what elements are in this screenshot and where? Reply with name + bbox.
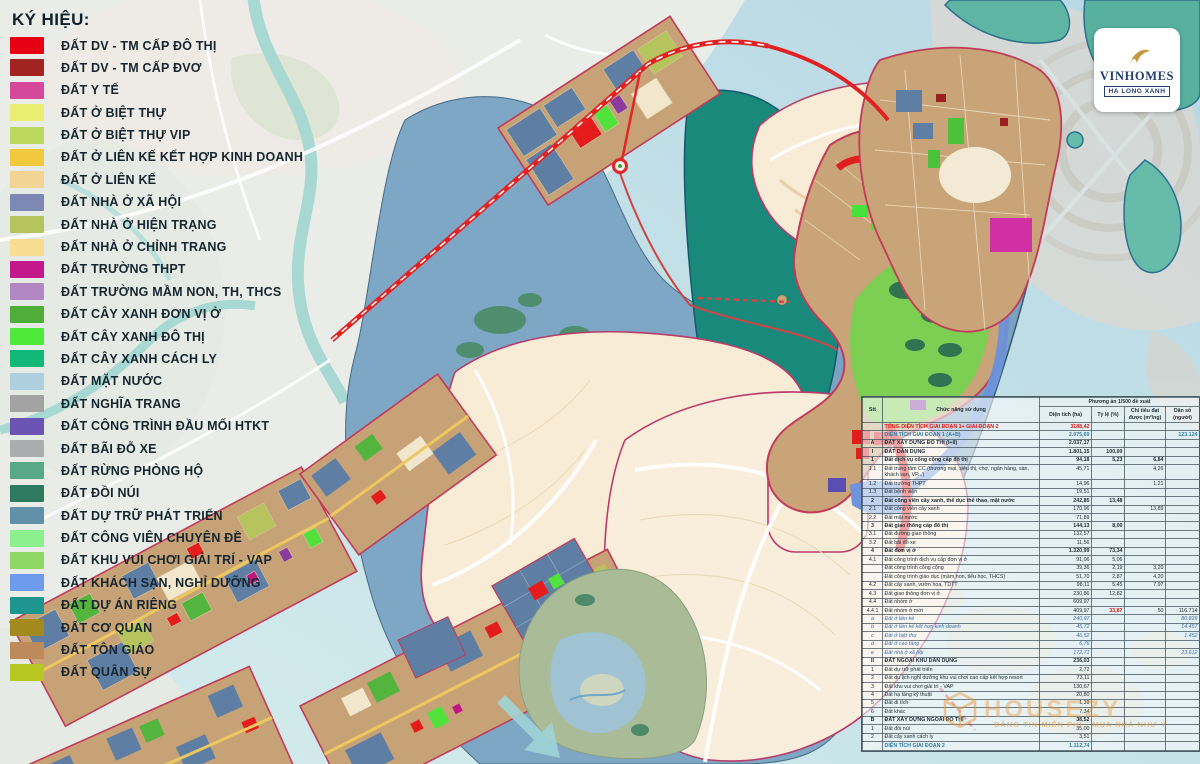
table-cell: Đất dịch vụ công cộng cấp đô thị: [883, 456, 1040, 464]
table-cell: 45,72: [1040, 623, 1092, 631]
table-cell: Đất đồi núi: [883, 725, 1040, 733]
col-header-plan: Phương án 1/500 đề xuất: [1040, 398, 1200, 407]
table-cell: 1.1: [863, 465, 883, 480]
table-cell: [1092, 742, 1125, 750]
table-cell: [1092, 431, 1125, 439]
table-cell: [1166, 725, 1200, 733]
table-cell: [1125, 431, 1166, 439]
table-cell: 4.4: [863, 598, 883, 606]
table-row: DIỆN TÍCH GIAI ĐOẠN 21.112,74: [863, 742, 1200, 750]
legend-label: ĐẤT TRƯỜNG MẦM NON, TH, THCS: [61, 285, 281, 299]
table-cell: 1.801,15: [1040, 448, 1092, 456]
table-cell: [1166, 581, 1200, 589]
table-cell: [863, 431, 883, 439]
legend-item: ĐẤT Ở BIỆT THỰ: [10, 104, 355, 121]
table-cell: Đất cây xanh cách ly: [883, 733, 1040, 741]
table-cell: 14,96: [1040, 480, 1092, 488]
legend-label: ĐẤT CÂY XANH ĐÔ THỊ: [61, 330, 205, 344]
legend-swatch: [10, 619, 44, 636]
table-cell: 2: [863, 497, 883, 505]
table-row: 4.2Đất cây xanh, vườn hoa, TDTT98,115,45…: [863, 581, 1200, 589]
table-cell: 4: [863, 547, 883, 555]
table-cell: 3,20: [1125, 564, 1166, 572]
legend-item: ĐẤT DV - TM CẤP ĐÔ THỊ: [10, 37, 355, 54]
legend-label: ĐẤT MẶT NƯỚC: [61, 374, 162, 388]
col-header-function: Chức năng sử dụng: [883, 398, 1040, 423]
table-cell: [1092, 657, 1125, 665]
legend-swatch: [10, 530, 44, 547]
table-cell: [1125, 448, 1166, 456]
table-cell: [1166, 683, 1200, 691]
table-cell: 4,26: [1125, 465, 1166, 480]
table-row: 4.1Đất công trình dịch vụ cấp đơn vị ở91…: [863, 556, 1200, 564]
table-cell: 3,51: [1040, 733, 1092, 741]
table-row: 5Đất di tích1,39: [863, 699, 1200, 707]
table-cell: [1166, 547, 1200, 555]
table-cell: [1125, 742, 1166, 750]
table-cell: 1: [863, 666, 883, 674]
legend-swatch: [10, 171, 44, 188]
legend-label: ĐẤT BÃI ĐỖ XE: [61, 442, 157, 456]
legend-label: ĐẤT Ở LIÊN KẾ: [61, 173, 156, 187]
table-cell: [1166, 716, 1200, 724]
legend-label: ĐẤT Ở LIÊN KẾ KẾT HỢP KINH DOANH: [61, 150, 303, 164]
table-cell: Đất ở liền kề: [883, 615, 1040, 623]
table-cell: 130,67: [1040, 683, 1092, 691]
table-cell: [1092, 615, 1125, 623]
table-cell: [1166, 514, 1200, 522]
table-cell: 2.1: [863, 505, 883, 513]
table-cell: Đất đường giao thông: [883, 530, 1040, 538]
legend-label: ĐẤT CÂY XANH CÁCH LY: [61, 352, 217, 366]
table-cell: 236,03: [1040, 657, 1092, 665]
legend-label: ĐẤT DỰ ÁN RIÊNG: [61, 598, 177, 612]
table-cell: TỔNG DIỆN TÍCH GIAI ĐOẠN 1+ GIAI ĐOẠN 2: [883, 423, 1040, 431]
table-cell: B: [863, 716, 883, 724]
table-cell: Đất công trình công cộng: [883, 564, 1040, 572]
table-cell: [1092, 623, 1125, 631]
legend-swatch: [10, 418, 44, 435]
table-cell: Đất công viên cây xanh: [883, 505, 1040, 513]
legend-label: ĐẤT DỰ TRỮ PHÁT TRIỂN: [61, 509, 223, 523]
legend-list: ĐẤT DV - TM CẤP ĐÔ THỊĐẤT DV - TM CẤP ĐV…: [10, 37, 355, 681]
table-cell: 4.4.1: [863, 607, 883, 615]
table-cell: 13,48: [1092, 497, 1125, 505]
legend-label: ĐẤT DV - TM CẤP ĐVƠ: [61, 61, 202, 75]
table-row: bĐất ở liền kề kết hợp kinh doanh45,7214…: [863, 623, 1200, 631]
table-cell: Đất khác: [883, 708, 1040, 716]
legend-label: ĐẤT CÔNG VIÊN CHUYÊN ĐỀ: [61, 531, 242, 545]
table-row: 2Đất du lịch nghỉ dưỡng khu vui chơi cao…: [863, 674, 1200, 682]
table-cell: [1125, 615, 1166, 623]
legend-item: ĐẤT CÔNG TRÌNH ĐẦU MỐI HTKT: [10, 418, 355, 435]
vinhomes-logo: VINHOMES HẠ LONG XANH: [1094, 28, 1180, 112]
legend-label: ĐẤT ĐỒI NÚI: [61, 486, 140, 500]
table-cell: Đất ở cao tầng: [883, 640, 1040, 648]
table-row: IIĐẤT NGOÀI KHU DÂN DỤNG236,03: [863, 657, 1200, 665]
legend-item: ĐẤT RỪNG PHÒNG HỘ: [10, 462, 355, 479]
table-row: aĐất ở liền kề240,9780.829: [863, 615, 1200, 623]
table-cell: Đất mặt nước: [883, 514, 1040, 522]
table-cell: 13,89: [1125, 505, 1166, 513]
legend-item: ĐẤT MẶT NƯỚC: [10, 373, 355, 390]
table-row: Đất công trình giáo dục (mầm non, tiểu h…: [863, 573, 1200, 581]
table-row: IĐẤT DÂN DỤNG1.801,15100,00: [863, 448, 1200, 456]
table-cell: [1166, 556, 1200, 564]
table-cell: [1166, 530, 1200, 538]
legend-swatch: [10, 261, 44, 278]
table-cell: 98,11: [1040, 581, 1092, 589]
table-row: 2.1Đất công viên cây xanh170,9613,89: [863, 505, 1200, 513]
table-cell: 1.320,99: [1040, 547, 1092, 555]
table-cell: [1125, 691, 1166, 699]
legend-item: ĐẤT TRƯỜNG MẦM NON, TH, THCS: [10, 283, 355, 300]
table-cell: 14.457: [1166, 623, 1200, 631]
legend-label: ĐẤT QUÂN SỰ: [61, 665, 151, 679]
table-cell: 50: [1125, 607, 1166, 615]
legend-swatch: [10, 127, 44, 144]
table-cell: 2,19: [1092, 564, 1125, 572]
table-cell: [1092, 725, 1125, 733]
table-cell: 2.075,69: [1040, 431, 1092, 439]
table-cell: [1125, 666, 1166, 674]
legend-item: ĐẤT DV - TM CẤP ĐVƠ: [10, 59, 355, 76]
table-cell: ĐẤT XÂY DỰNG ĐÔ THỊ (I+II): [883, 439, 1040, 447]
table-cell: 4.3: [863, 590, 883, 598]
table-cell: [1125, 488, 1166, 496]
legend-item: ĐẤT NHÀ Ở XÃ HỘI: [10, 194, 355, 211]
table-cell: I: [863, 448, 883, 456]
table-cell: ĐẤT XÂY DỰNG NGOÀI ĐÔ THỊ: [883, 716, 1040, 724]
table-cell: [1166, 674, 1200, 682]
table-cell: [1125, 522, 1166, 530]
table-row: 3.1Đất đường giao thông132,57: [863, 530, 1200, 538]
table-cell: 46,52: [1040, 632, 1092, 640]
table-cell: 38,52: [1040, 716, 1092, 724]
table-cell: [1125, 556, 1166, 564]
legend-swatch: [10, 59, 44, 76]
legend-item: ĐẤT CÂY XANH ĐƠN VỊ Ở: [10, 306, 355, 323]
table-cell: [1125, 699, 1166, 707]
legend-item: ĐẤT Ở LIÊN KẾ KẾT HỢP KINH DOANH: [10, 149, 355, 166]
table-cell: ĐẤT NGOÀI KHU DÂN DỤNG: [883, 657, 1040, 665]
table-row: 1.2Đất trường THPT14,961,21: [863, 480, 1200, 488]
table-row: 1Đất dịch vụ công cộng cấp đô thị94,185,…: [863, 456, 1200, 464]
table-cell: [1166, 497, 1200, 505]
table-cell: c: [863, 632, 883, 640]
table-cell: Đất ở liền kề kết hợp kinh doanh: [883, 623, 1040, 631]
table-cell: [1166, 640, 1200, 648]
table-cell: 80.829: [1166, 615, 1200, 623]
legend-label: ĐẤT NHÀ Ở XÃ HỘI: [61, 195, 181, 209]
table-cell: [1125, 514, 1166, 522]
legend-swatch: [10, 104, 44, 121]
table-cell: [1125, 683, 1166, 691]
table-cell: 116.714: [1166, 607, 1200, 615]
col-header-pct: Tỷ lệ (%): [1092, 407, 1125, 423]
table-cell: [1125, 657, 1166, 665]
table-cell: [1166, 448, 1200, 456]
table-cell: Đất công trình dịch vụ cấp đơn vị ở: [883, 556, 1040, 564]
legend-item: ĐẤT CÔNG VIÊN CHUYÊN ĐỀ: [10, 530, 355, 547]
table-cell: [1092, 674, 1125, 682]
table-cell: 73,34: [1092, 547, 1125, 555]
table-cell: 3: [863, 683, 883, 691]
col-header-stt: Stt: [863, 398, 883, 423]
table-cell: 242,85: [1040, 497, 1092, 505]
legend-item: ĐẤT KHU VUI CHƠI GIẢI TRÍ - VAP: [10, 552, 355, 569]
table-cell: 5,23: [1092, 456, 1125, 464]
table-cell: [1092, 716, 1125, 724]
table-cell: d: [863, 640, 883, 648]
legend-label: ĐẤT KHU VUI CHƠI GIẢI TRÍ - VAP: [61, 553, 272, 567]
table-cell: [1166, 423, 1200, 431]
table-cell: [1092, 465, 1125, 480]
table-row: AĐẤT XÂY DỰNG ĐÔ THỊ (I+II)2.037,17: [863, 439, 1200, 447]
legend-swatch: [10, 462, 44, 479]
table-cell: 94,18: [1040, 456, 1092, 464]
table-row: 3.2Đất bãi đỗ xe11,56: [863, 539, 1200, 547]
table-row: 1Đất đồi núi35,00: [863, 725, 1200, 733]
legend-item: ĐẤT TÔN GIÁO: [10, 642, 355, 659]
table-cell: 230,86: [1040, 590, 1092, 598]
table-cell: [1166, 657, 1200, 665]
legend-swatch: [10, 216, 44, 233]
table-cell: [1092, 598, 1125, 606]
table-cell: [863, 742, 883, 750]
table-cell: [1125, 716, 1166, 724]
legend-swatch: [10, 82, 44, 99]
legend-label: ĐẤT CƠ QUAN: [61, 621, 152, 635]
table-cell: e: [863, 649, 883, 657]
table-cell: [1092, 488, 1125, 496]
table-cell: 45,71: [1040, 465, 1092, 480]
table-cell: [1166, 522, 1200, 530]
table-cell: 170,96: [1040, 505, 1092, 513]
table-row: 4.4.1Đất nhóm ở mới409,9733,8750116.714: [863, 607, 1200, 615]
table-cell: 3: [863, 522, 883, 530]
table-cell: Đất dự trữ phát triển: [883, 666, 1040, 674]
table-row: 4Đất hạ tầng kỹ thuật20,80: [863, 691, 1200, 699]
legend-swatch: [10, 149, 44, 166]
table-row: 4.3Đất giao thông đơn vị ở230,8612,82: [863, 590, 1200, 598]
legend-item: ĐẤT Y TẾ: [10, 82, 355, 99]
table-cell: 100,00: [1092, 448, 1125, 456]
table-cell: 91,06: [1040, 556, 1092, 564]
table-cell: 39,36: [1040, 564, 1092, 572]
legend-item: ĐẤT CƠ QUAN: [10, 619, 355, 636]
table-cell: [1092, 666, 1125, 674]
legend-label: ĐẤT Ở BIỆT THỰ: [61, 106, 166, 120]
table-cell: 6,76: [1040, 640, 1092, 648]
table-cell: [1166, 573, 1200, 581]
table-cell: [1166, 505, 1200, 513]
table-cell: 3.1: [863, 530, 883, 538]
legend-swatch: [10, 664, 44, 681]
table-cell: Đất giao thông cấp đô thị: [883, 522, 1040, 530]
table-row: 2.2Đất mặt nước71,89: [863, 514, 1200, 522]
table-cell: Đất bệnh viện: [883, 488, 1040, 496]
legend-item: ĐẤT CÂY XANH ĐÔ THỊ: [10, 328, 355, 345]
table-cell: 73,11: [1040, 674, 1092, 682]
table-cell: 12,82: [1092, 590, 1125, 598]
land-use-table: Stt Chức năng sử dụng Phương án 1/500 đề…: [862, 397, 1199, 751]
table-row: Đất công trình công cộng39,362,193,20: [863, 564, 1200, 572]
logo-brand: VINHOMES: [1100, 69, 1174, 84]
table-cell: [1125, 708, 1166, 716]
table-cell: 2,72: [1040, 666, 1092, 674]
table-cell: 5,45: [1092, 581, 1125, 589]
legend-label: ĐẤT KHÁCH SẠN, NGHỈ DƯỠNG: [61, 576, 261, 590]
table-cell: 1.2: [863, 480, 883, 488]
table-cell: 4.1: [863, 556, 883, 564]
table-cell: 2: [863, 674, 883, 682]
legend-label: ĐẤT NHÀ Ở HIỆN TRẠNG: [61, 218, 217, 232]
table-cell: [1125, 590, 1166, 598]
table-cell: [1125, 674, 1166, 682]
table-cell: II: [863, 657, 883, 665]
table-cell: Đất du lịch nghỉ dưỡng khu vui chơi cao …: [883, 674, 1040, 682]
legend-swatch: [10, 507, 44, 524]
table-cell: 19,51: [1040, 488, 1092, 496]
legend-item: ĐẤT ĐỒI NÚI: [10, 485, 355, 502]
table-cell: 2,87: [1092, 573, 1125, 581]
table-row: 2Đất cây xanh cách ly3,51: [863, 733, 1200, 741]
table-cell: [1092, 530, 1125, 538]
table-row: 1.3Đất bệnh viện19,51: [863, 488, 1200, 496]
legend-item: ĐẤT DỰ ÁN RIÊNG: [10, 597, 355, 614]
table-cell: 132,57: [1040, 530, 1092, 538]
table-cell: DIỆN TÍCH GIAI ĐOẠN 1 (A+B): [883, 431, 1040, 439]
table-cell: [1166, 465, 1200, 480]
legend-label: ĐẤT NHÀ Ở CHỈNH TRANG: [61, 240, 227, 254]
legend-item: ĐẤT CÂY XANH CÁCH LY: [10, 350, 355, 367]
table-cell: 7,97: [1125, 581, 1166, 589]
table-cell: [1092, 649, 1125, 657]
table-cell: 51,70: [1040, 573, 1092, 581]
legend-item: ĐẤT Ở BIỆT THỰ VIP: [10, 127, 355, 144]
table-cell: [1125, 497, 1166, 505]
table-cell: Đất đơn vị ở: [883, 547, 1040, 555]
table-cell: 3188,42: [1040, 423, 1092, 431]
legend-swatch: [10, 328, 44, 345]
table-cell: 4,20: [1125, 573, 1166, 581]
table-cell: [1166, 456, 1200, 464]
table-cell: [1092, 691, 1125, 699]
table-cell: 4.2: [863, 581, 883, 589]
legend-swatch: [10, 194, 44, 211]
legend-swatch: [10, 597, 44, 614]
table-cell: [1125, 423, 1166, 431]
table-cell: 2.2: [863, 514, 883, 522]
table-cell: 71,89: [1040, 514, 1092, 522]
table-cell: b: [863, 623, 883, 631]
legend-swatch: [10, 485, 44, 502]
table-cell: [1125, 439, 1166, 447]
table-cell: 144,13: [1040, 522, 1092, 530]
legend-swatch: [10, 395, 44, 412]
table-cell: [1125, 649, 1166, 657]
table-cell: [1092, 683, 1125, 691]
table-cell: 2: [863, 733, 883, 741]
legend-label: ĐẤT TÔN GIÁO: [61, 643, 154, 657]
table-cell: [1092, 699, 1125, 707]
legend-swatch: [10, 642, 44, 659]
table-row: dĐất ở cao tầng6,76: [863, 640, 1200, 648]
table-cell: [863, 564, 883, 572]
table-cell: 172,71: [1040, 649, 1092, 657]
table-cell: [1166, 488, 1200, 496]
legend-swatch: [10, 373, 44, 390]
table-cell: [1092, 423, 1125, 431]
table-cell: 609,97: [1040, 598, 1092, 606]
legend-swatch: [10, 37, 44, 54]
table-cell: Đất khu vui chơi giải trí - VAP: [883, 683, 1040, 691]
table-cell: 409,97: [1040, 607, 1092, 615]
table-cell: 8,00: [1092, 522, 1125, 530]
table-cell: 20,80: [1040, 691, 1092, 699]
table-cell: a: [863, 615, 883, 623]
col-header-norm: Chỉ tiêu đạt được (m²/ng): [1125, 407, 1166, 423]
table-cell: 5,06: [1092, 556, 1125, 564]
legend-swatch: [10, 552, 44, 569]
table-cell: [1166, 564, 1200, 572]
table-cell: Đất bãi đỗ xe: [883, 539, 1040, 547]
table-cell: [1125, 632, 1166, 640]
table-cell: 1: [863, 456, 883, 464]
table-cell: 240,97: [1040, 615, 1092, 623]
table-cell: [1166, 480, 1200, 488]
legend-item: ĐẤT NGHĨA TRANG: [10, 395, 355, 412]
legend-swatch: [10, 239, 44, 256]
table-cell: [1092, 632, 1125, 640]
table-cell: 1: [863, 725, 883, 733]
table-cell: [1125, 539, 1166, 547]
table-cell: [863, 573, 883, 581]
legend-label: ĐẤT TRƯỜNG THPT: [61, 262, 186, 276]
table-row: 6Đất khác7,34: [863, 708, 1200, 716]
table-cell: [1166, 439, 1200, 447]
table-cell: [1125, 640, 1166, 648]
table-row: 3Đất khu vui chơi giải trí - VAP130,67: [863, 683, 1200, 691]
legend-title: KÝ HIỆU:: [12, 10, 355, 30]
table-cell: Đất nhóm ở mới: [883, 607, 1040, 615]
table-cell: [1125, 623, 1166, 631]
table-cell: 5: [863, 699, 883, 707]
table-row: 3Đất giao thông cấp đô thị144,138,00: [863, 522, 1200, 530]
legend-swatch: [10, 440, 44, 457]
table-row: DIỆN TÍCH GIAI ĐOẠN 1 (A+B)2.075,69123.1…: [863, 431, 1200, 439]
table-cell: 3.2: [863, 539, 883, 547]
table-cell: 1.3: [863, 488, 883, 496]
table-cell: 123.124: [1166, 431, 1200, 439]
legend-swatch: [10, 283, 44, 300]
table-row: eĐất nhà ở xã hội172,7123.612: [863, 649, 1200, 657]
table-cell: [1092, 439, 1125, 447]
table-cell: [1125, 598, 1166, 606]
table-cell: [1125, 733, 1166, 741]
legend-swatch: [10, 574, 44, 591]
logo-subtitle: HẠ LONG XANH: [1104, 86, 1171, 97]
table-cell: 4: [863, 691, 883, 699]
col-header-area: Diện tích (ha): [1040, 407, 1092, 423]
table-cell: Đất nhóm ở: [883, 598, 1040, 606]
table-cell: Đất cây xanh, vườn hoa, TDTT: [883, 581, 1040, 589]
legend-item: ĐẤT KHÁCH SẠN, NGHỈ DƯỠNG: [10, 574, 355, 591]
legend-label: ĐẤT Y TẾ: [61, 83, 119, 97]
table-row: 1.1Đất trung tâm CC (thương mại, siêu th…: [863, 465, 1200, 480]
table-cell: DIỆN TÍCH GIAI ĐOẠN 2: [883, 742, 1040, 750]
